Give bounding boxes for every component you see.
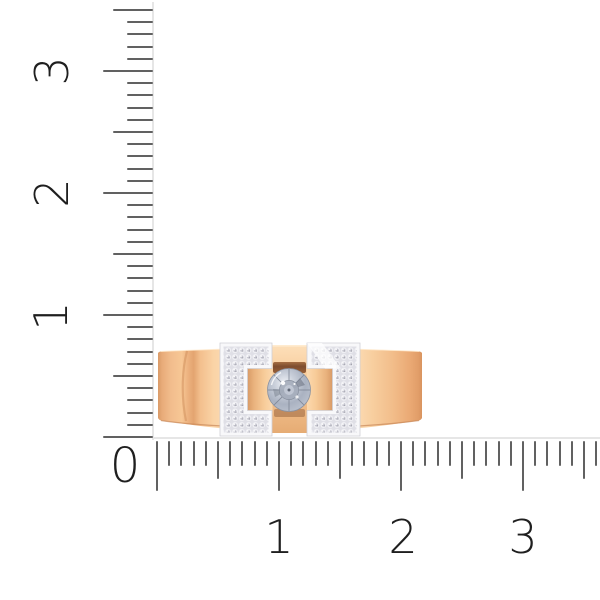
ruler-tick bbox=[127, 229, 153, 231]
ruler-tick bbox=[127, 302, 153, 304]
ruler-tick bbox=[571, 441, 573, 466]
ruler-tick bbox=[127, 94, 153, 96]
ruler-tick bbox=[583, 441, 585, 479]
ruler-tick bbox=[449, 441, 451, 466]
ruler-label: 1 bbox=[264, 514, 293, 560]
ruler-tick bbox=[127, 168, 153, 170]
ruler-tick bbox=[127, 107, 153, 109]
ruler-tick bbox=[485, 441, 487, 466]
ruler-tick bbox=[113, 375, 153, 377]
ruler-tick bbox=[437, 441, 439, 466]
ruler-tick bbox=[127, 216, 153, 218]
ruler-tick bbox=[127, 21, 153, 23]
ruler-tick bbox=[546, 441, 548, 466]
ruler-tick bbox=[113, 131, 153, 133]
ruler-tick bbox=[278, 441, 280, 491]
ruler-label: 2 bbox=[388, 514, 417, 560]
ruler-tick bbox=[127, 119, 153, 121]
ruler-tick bbox=[103, 70, 153, 72]
ruler-label: 3 bbox=[29, 56, 75, 85]
ruler-tick bbox=[156, 441, 158, 491]
ruler-tick bbox=[510, 441, 512, 466]
ruler-tick bbox=[127, 265, 153, 267]
ruler-tick bbox=[127, 204, 153, 206]
ruler-tick bbox=[127, 33, 153, 35]
ring-center-stone bbox=[268, 369, 311, 412]
ruler-tick bbox=[113, 9, 153, 11]
ruler-label: 3 bbox=[508, 514, 537, 560]
ruler-tick bbox=[127, 143, 153, 145]
ruler-tick bbox=[127, 46, 153, 48]
ruler-tick bbox=[127, 82, 153, 84]
ruler-label: 2 bbox=[29, 178, 75, 207]
ruler-tick bbox=[103, 192, 153, 194]
ruler-tick bbox=[127, 277, 153, 279]
ruler-tick bbox=[103, 314, 153, 316]
ruler-tick bbox=[127, 58, 153, 60]
ruler-tick bbox=[127, 326, 153, 328]
ruler-tick bbox=[534, 441, 536, 466]
ruler-tick bbox=[595, 441, 597, 466]
origin-label: 0 bbox=[110, 442, 141, 490]
ruler-tick bbox=[461, 441, 463, 479]
ruler-tick bbox=[127, 180, 153, 182]
ruler-tick bbox=[127, 241, 153, 243]
ruler-tick bbox=[113, 253, 153, 255]
ruler-tick bbox=[498, 441, 500, 466]
ruler-tick bbox=[559, 441, 561, 466]
ring-photo bbox=[150, 340, 430, 448]
ruler-tick bbox=[127, 290, 153, 292]
ruler-tick bbox=[522, 441, 524, 491]
product-measurement-view: 3 2 1 1 2 3 0 bbox=[0, 0, 600, 600]
ruler-tick bbox=[127, 155, 153, 157]
ruler-tick bbox=[400, 441, 402, 491]
ruler-tick bbox=[473, 441, 475, 466]
ruler-label: 1 bbox=[28, 301, 74, 330]
